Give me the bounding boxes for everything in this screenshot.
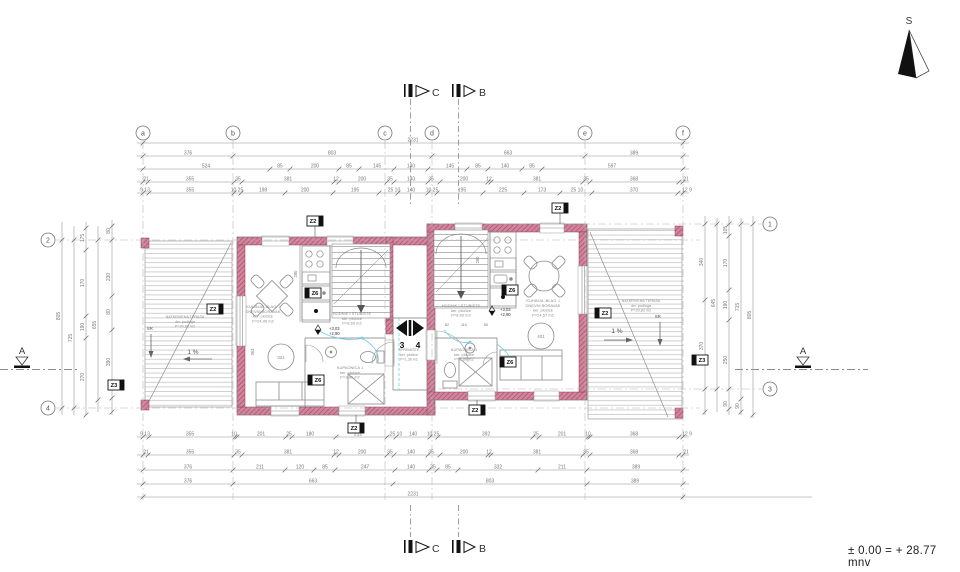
dim-label: 195 — [351, 187, 360, 193]
dim-row-10: 805 — [56, 222, 64, 415]
tag-z6-left-bath-label: Z6 — [315, 378, 323, 384]
floor-plan-drawing: S abcdef2413 223137680366338952485200851… — [0, 0, 960, 572]
dim-label: 21 — [683, 449, 689, 455]
grid-bubble-label-e: e — [583, 130, 587, 137]
dim-label: 85 — [277, 163, 283, 169]
dim-label: 10 25 — [427, 431, 440, 437]
sofa-left — [256, 382, 324, 406]
dim-label: 803 — [328, 150, 337, 156]
dim-label: 25 — [533, 431, 539, 437]
grid-bubble-label-3: 3 — [768, 386, 772, 393]
dim-label: 12 9 — [682, 431, 692, 437]
grid-bubble-label-d: d — [430, 130, 434, 137]
dim-label: 180 — [306, 431, 315, 437]
dim-label: 200 — [460, 449, 469, 455]
dim-row-9: 2231 — [137, 491, 812, 499]
room-label-left-storage-line: ker. pločice — [400, 353, 418, 357]
dim-label: 2231 — [407, 491, 418, 497]
dim-row-18: 71590 — [735, 218, 743, 415]
tag-z2-left-top: Z2 — [307, 216, 323, 237]
dim-label: 368 — [630, 449, 639, 455]
dim-label: 80 — [106, 309, 112, 315]
tag-z3-left: Z3 — [108, 380, 124, 390]
dim-label: 170 — [80, 279, 86, 288]
dim-label: 370 — [630, 187, 639, 193]
tag-z6-left-kitchen-label: Z6 — [312, 291, 320, 297]
dim-label: 85 — [346, 163, 352, 169]
dim-label: 211 — [558, 464, 566, 470]
dim-label: 230 — [106, 273, 112, 282]
north-arrow: S — [898, 16, 929, 78]
section-letter-top-c: C — [432, 87, 440, 99]
tag-z6-right-kitchen: Z6 — [502, 285, 518, 295]
dim-row-7: 376211120852471403585332211389 — [137, 464, 689, 472]
dim-row-0: 2231 — [137, 137, 689, 145]
dim-row-1: 376803663389 — [137, 150, 689, 158]
room-label-right-hall-line: P=8,60 m2 — [451, 313, 471, 318]
dim-label: 381 — [533, 176, 542, 182]
dim-label: 21 — [143, 449, 149, 455]
dim-label: 355 — [186, 449, 195, 455]
dim-label: 332 — [494, 464, 503, 470]
level-marker-left — [315, 325, 321, 335]
dim-label: 247 — [361, 464, 370, 470]
dim-label: 200 — [301, 187, 310, 193]
dim-label: 25 10 — [388, 187, 401, 193]
stairs-right — [434, 230, 488, 308]
dim-row-6: 2135535381122003514035200123813536821 — [137, 449, 689, 457]
room-label-left-terrace-line: NATKRIVENA TERASA — [166, 315, 205, 319]
room-label-right-living-line: P=24,57 m2 — [532, 312, 554, 317]
dim-row-15: 340370 — [699, 216, 707, 415]
dim-label: 25 10 — [571, 187, 584, 193]
dim-label: 35 — [387, 449, 393, 455]
dim-label: 376 — [184, 478, 193, 484]
dim-label: 90 — [723, 401, 729, 407]
table-left-number: 321 — [277, 355, 285, 360]
dim-label: 12 — [333, 449, 339, 455]
kitchen-left — [302, 246, 330, 322]
dim-label: 198 — [259, 187, 268, 193]
grid-bubble-label-b: b — [231, 130, 235, 137]
dim-label: 175 — [80, 234, 86, 243]
room-label-right-terrace-line: P=20,83 m2 — [631, 309, 651, 313]
tag-z2-right-bottom-label: Z2 — [472, 408, 479, 414]
dim-row-12: 175170190270 — [80, 222, 88, 417]
dim-label: 10 — [585, 431, 591, 437]
dim-row-5: 9 13355102012518021225 1014010 253922520… — [137, 431, 692, 439]
dim-290: 290 — [475, 256, 480, 264]
room-label-right-hall: HODNIK I STUBIŠTEker. pločiceP=8,60 m2 — [442, 303, 481, 318]
dim-label: 140 — [407, 449, 416, 455]
detail-markers — [396, 320, 424, 336]
dim-label: 35 — [428, 449, 434, 455]
dim-label: 389 — [631, 478, 640, 484]
room-label-right-terrace-line: NATKRIVENA TERASA — [622, 299, 661, 303]
grid-bubble-label-f: f — [682, 130, 684, 137]
room-label-right-terrace-line: drv. podloga — [631, 304, 652, 308]
tag-z2-left-bottom: Z2 — [348, 415, 364, 433]
tag-z3-left-label: Z3 — [111, 383, 119, 389]
room-label-left-terrace-line: P=20,83 m2 — [175, 325, 195, 329]
dim-row-13: 655 — [92, 226, 100, 412]
dim-label: 120 — [296, 464, 305, 470]
dim-label: 2231 — [407, 137, 418, 143]
dim-label: 381 — [284, 176, 293, 182]
dim-label: 390 — [106, 358, 112, 367]
room-label-right-bath-line: P=3,86 m2 — [454, 357, 474, 362]
dim-label: 524 — [202, 163, 211, 169]
section-markers — [404, 84, 475, 553]
north-label: S — [906, 16, 913, 27]
level-right-lower: +2,90 — [500, 312, 511, 317]
dim-label: 376 — [184, 150, 193, 156]
dim-label: 381 — [533, 449, 542, 455]
dim-label: 376 — [184, 464, 193, 470]
dim-label: 368 — [630, 176, 639, 182]
dim-label: 355 — [186, 187, 195, 193]
dim-label: 250 — [723, 356, 729, 365]
dim-label: 200 — [358, 449, 367, 455]
room-label-left-living: KUHINJA, BLAG. IDNEVNI BORAVAKker. ploči… — [246, 304, 281, 323]
dining-set-right — [523, 255, 567, 299]
dim-label: 645 — [711, 299, 717, 308]
dim-label: 140 — [407, 176, 416, 182]
tag-z6-right-kitchen-label: Z6 — [509, 288, 517, 294]
dim-280: 280 — [293, 270, 298, 278]
stairs-left — [332, 244, 390, 318]
dim-label: 200 — [358, 176, 367, 182]
room-label-left-hall-line: P=8,60 m2 — [342, 321, 362, 326]
dim-label: 655 — [92, 321, 98, 330]
section-a-left-label: A — [19, 346, 26, 357]
tag-z2-left-terrace: Z2 — [207, 304, 223, 314]
dim-label: 211 — [256, 464, 264, 470]
dim-row-17: 10517019025090 — [723, 216, 731, 415]
room-label-right-bath: KUPAONICA 1ker. pločiceP=3,86 m2 — [451, 347, 478, 362]
room-label-left-bath: KUPAONICA 1ker. pločiceP=3,86 m2 — [337, 365, 364, 380]
dim-82: 82 — [445, 323, 449, 327]
dim-110: 110 — [461, 323, 467, 327]
dim-label: 597 — [608, 163, 617, 169]
dim-label: 190 — [80, 323, 86, 332]
detail-marker-3-label: 3 — [400, 340, 405, 350]
dim-label: 25 — [286, 431, 292, 437]
tag-z2-left-top-label: Z2 — [310, 219, 317, 225]
dim-label: 140 — [407, 187, 416, 193]
dim-label: 10 25 — [231, 187, 244, 193]
section-letter-bottom-b: B — [479, 543, 486, 555]
room-label-left-storage-line: P=1,36 m2 — [400, 358, 417, 362]
dim-label: 805 — [56, 312, 62, 321]
dim-label: 370 — [699, 342, 705, 351]
dim-label: 173 — [538, 187, 547, 193]
dim-label: 145 — [373, 163, 382, 169]
tag-z2-right-bottom: Z2 — [469, 400, 485, 415]
dim-label: 392 — [482, 431, 491, 437]
dim-label: 170 — [723, 259, 729, 268]
dim-label: 35 — [583, 176, 589, 182]
dim-row-11: 725 — [68, 226, 76, 415]
dim-label: 12 — [486, 176, 492, 182]
dim-label: 10 25 — [426, 187, 439, 193]
dim-label: 9 13 — [140, 187, 150, 193]
dim-label: 140 — [501, 163, 510, 169]
dim-label: 355 — [186, 431, 195, 437]
dim-label: 21 — [683, 176, 689, 182]
annotations-layer: CBCBAA341 %1 %8R8R+3,03+2,90+3,03+2,9032… — [19, 87, 807, 555]
dim-label: 85 — [529, 163, 535, 169]
tag-z6-left-bath: Z6 — [308, 375, 324, 385]
dim-label: 663 — [504, 150, 513, 156]
dim-label: 85 — [445, 464, 451, 470]
dim-row-4: 9 1335510 2519820019525 1014010 25195225… — [137, 187, 692, 195]
tag-z2-right-terrace: Z2 — [595, 308, 611, 318]
dim-label: 195 — [458, 187, 467, 193]
detail-marker-4-label: 4 — [416, 340, 421, 350]
dim-60: 60 — [484, 323, 488, 327]
dim-label: 10 — [231, 431, 237, 437]
grid-bubble-label-4: 4 — [46, 405, 50, 412]
dim-label: 725 — [68, 334, 74, 343]
dim-label: 340 — [699, 258, 705, 267]
dim-label: 105 — [723, 226, 729, 235]
room-label-left-living-line: P=24,96 m2 — [252, 318, 274, 323]
tag-z2-left-terrace-label: Z2 — [210, 307, 217, 313]
dim-label: 389 — [630, 150, 639, 156]
dim-label: 715 — [735, 303, 741, 312]
dim-label: 12 9 — [682, 187, 692, 193]
slope-right-label: 1 % — [611, 328, 622, 335]
slope-left-label: 1 % — [187, 349, 198, 356]
level-left-lower: +2,90 — [329, 331, 340, 336]
dim-label: 35 — [235, 176, 241, 182]
room-label-left-terrace-line: drv. podloga — [175, 320, 196, 324]
grid-bubble-label-1: 1 — [768, 221, 772, 228]
dim-label: 201 — [257, 431, 266, 437]
dim-label: 140 — [407, 163, 416, 169]
dim-label: 368 — [630, 431, 639, 437]
dim-label: 201 — [558, 431, 567, 437]
dim-label: 381 — [284, 449, 293, 455]
tag-z2-right-top: Z2 — [552, 203, 568, 224]
stairs-right-terrace-label: 8R — [655, 314, 662, 319]
dim-label: 389 — [632, 464, 641, 470]
dim-row-19: 805 — [747, 216, 755, 418]
dim-label: 21 — [143, 176, 149, 182]
table-right-number: 401 — [537, 334, 545, 339]
dim-row-16: 645 — [711, 218, 719, 412]
dim-363: 363 — [250, 348, 255, 356]
kitchen-right — [490, 232, 516, 308]
dim-label: 803 — [486, 478, 495, 484]
room-label-right-living: KUHINJA, BLAG. IDNEVNI BORAVAKker. ploči… — [526, 298, 561, 317]
floor-plan-page: S abcdef2413 223137680366338952485200851… — [0, 0, 960, 572]
section-letter-bottom-c: C — [432, 543, 440, 555]
grid-bubble-label-2: 2 — [46, 237, 50, 244]
tag-z6-left-kitchen: Z6 — [305, 288, 321, 298]
dim-label: 270 — [80, 373, 86, 382]
dim-label: 355 — [186, 176, 195, 182]
dim-label: 805 — [747, 311, 753, 320]
section-letter-top-b: B — [479, 87, 486, 99]
tag-z2-right-top-label: Z2 — [555, 206, 562, 212]
tag-z2-left-bottom-label: Z2 — [351, 426, 358, 432]
dim-label: 200 — [311, 163, 320, 169]
dim-label: 85 — [475, 163, 481, 169]
stairs-left-terrace-label: 8R — [147, 326, 154, 331]
windows — [236, 223, 588, 416]
room-label-left-bath-line: P=3,86 m2 — [340, 375, 360, 380]
dim-label: 85 — [322, 464, 328, 470]
dim-label: 190 — [723, 301, 729, 310]
section-a-right-label: A — [800, 346, 807, 357]
dim-row-3: 2135535381122003514035200123813536821 — [137, 176, 689, 184]
dim-label: 663 — [309, 478, 318, 484]
tag-z3-right: Z3 — [692, 355, 708, 365]
dim-label: 225 — [499, 187, 508, 193]
dim-label: 35 — [583, 449, 589, 455]
grid-bubble-label-a: a — [141, 130, 145, 137]
dim-label: 35 — [387, 176, 393, 182]
dim-row-2: 52485200851451401458514085597 — [137, 163, 689, 171]
dim-row-8: 376663803389 — [137, 478, 689, 486]
dim-label: 35 — [428, 176, 434, 182]
dim-label: 25 10 — [390, 431, 403, 437]
dim-label: 12 — [486, 449, 492, 455]
dim-label: 35 — [430, 464, 436, 470]
partitions — [237, 224, 587, 415]
tag-z6-right-bath: Z6 — [500, 357, 516, 367]
dim-label: 140 — [409, 431, 418, 437]
elevation-note: ± 0.00 = + 28.77 mnv — [848, 545, 960, 569]
dim-label: 90 — [735, 403, 741, 409]
tag-z2-right-terrace-label: Z2 — [602, 311, 609, 317]
dim-label: 145 — [446, 163, 455, 169]
tag-z3-right-label: Z3 — [699, 358, 707, 364]
grid-bubble-label-c: c — [383, 130, 387, 137]
dim-label: 200 — [460, 176, 469, 182]
dim-label: 12 — [333, 176, 339, 182]
right-terrace-deck — [588, 229, 682, 419]
dim-label: 140 — [407, 464, 416, 470]
dim-label: 9 13 — [140, 431, 150, 437]
dim-label: 80 — [106, 228, 112, 234]
dim-label: 35 — [235, 449, 241, 455]
tag-z6-right-bath-label: Z6 — [507, 360, 515, 366]
